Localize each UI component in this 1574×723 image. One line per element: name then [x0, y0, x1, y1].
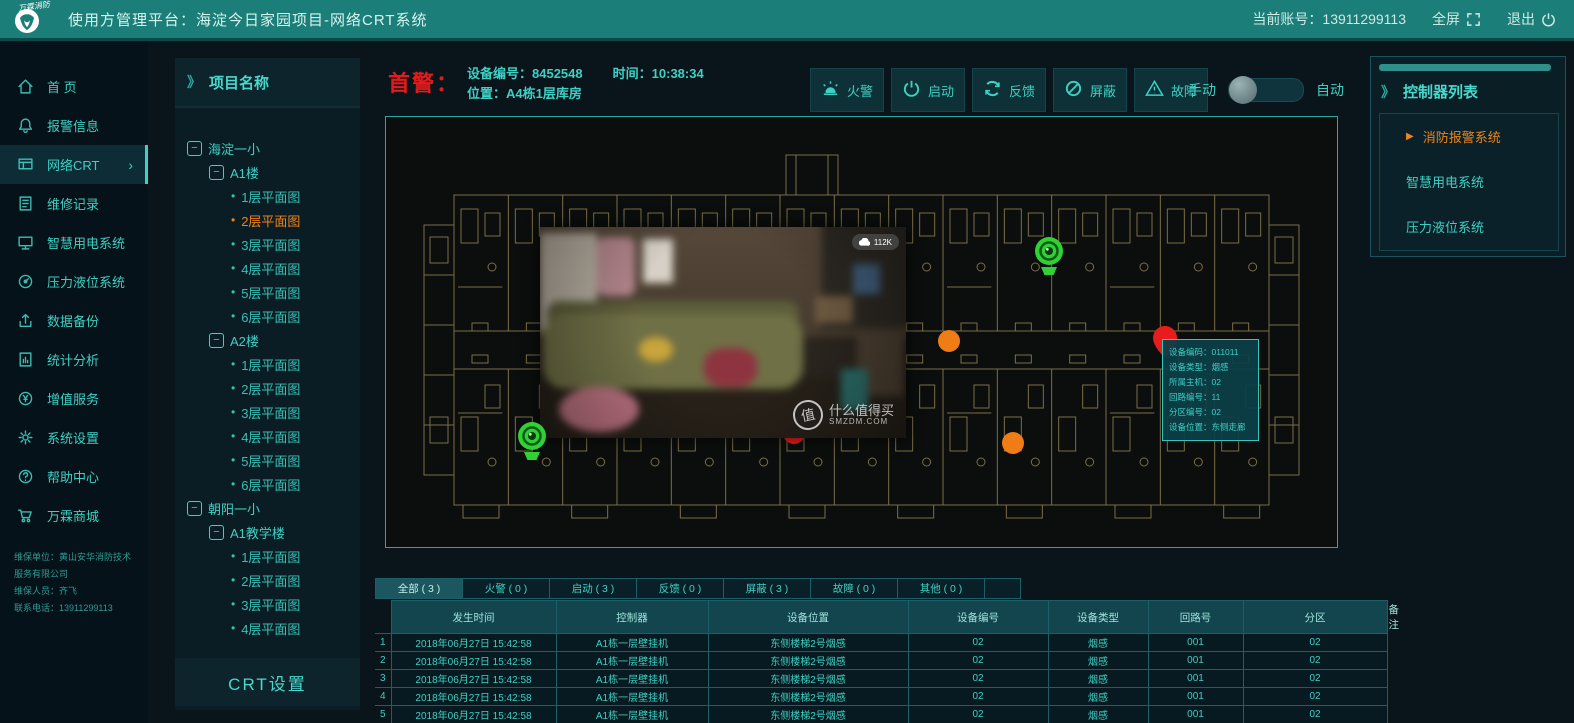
table-cell: 2 — [375, 652, 391, 670]
sidebar-item-value-added[interactable]: 增值服务 — [0, 379, 148, 418]
sidebar-item-label: 增值服务 — [47, 389, 99, 408]
bullet-icon: • — [231, 357, 235, 371]
location-value: A4栋1层库房 — [506, 86, 582, 101]
tree-item-label: 4层平面图 — [241, 427, 300, 446]
event-tab[interactable]: 屏蔽 ( 3 ) — [724, 579, 811, 598]
location-label: 位置： — [467, 86, 506, 101]
block-icon — [1064, 79, 1083, 101]
device-dot-orange[interactable] — [1002, 432, 1024, 454]
feedback-button[interactable]: 反馈 — [972, 68, 1046, 112]
app-title: 使用方管理平台：海淀今日家园项目-网络CRT系统 — [68, 9, 428, 30]
table-cell: A1栋一层壁挂机 — [556, 688, 708, 706]
floorplan-map[interactable]: 112K 值 什么值得买 SMZDM.COM 设备编码：011011设备类型：烟… — [385, 116, 1338, 548]
table-cell: A1栋一层壁挂机 — [556, 670, 708, 688]
controller-item[interactable]: 智慧用电系统 — [1380, 159, 1558, 204]
sidebar-footer-line: 维保人员：齐飞 — [14, 583, 136, 600]
sidebar-item-home[interactable]: 首 页 — [0, 67, 148, 106]
bullet-icon: • — [231, 621, 235, 635]
tree-item-label: 3层平面图 — [241, 403, 300, 422]
tree-item-label: 5层平面图 — [241, 451, 300, 470]
controller-item[interactable]: 压力液位系统 — [1380, 204, 1558, 249]
sidebar-footer-line: 维保单位：黄山安华消防技术服务有限公司 — [14, 549, 136, 583]
power-icon — [1541, 12, 1556, 27]
tree-item[interactable]: •2层平面图 — [175, 208, 360, 232]
time-label: 时间： — [613, 66, 652, 81]
fullscreen-icon — [1466, 12, 1481, 27]
camera-video-popup[interactable]: 112K 值 什么值得买 SMZDM.COM — [540, 227, 906, 438]
action-button-label: 启动 — [928, 81, 954, 100]
tree-item-label: 1层平面图 — [241, 355, 300, 374]
siren-icon — [821, 79, 840, 101]
tooltip-row: 分区编号：02 — [1169, 405, 1252, 420]
table-cell: 02 — [1243, 634, 1387, 652]
table-cell: 东侧楼梯2号烟感 — [708, 688, 908, 706]
camera-marker[interactable] — [1031, 235, 1067, 284]
video-watermark: 值 什么值得买 SMZDM.COM — [793, 400, 894, 430]
coin-icon — [17, 390, 34, 407]
tree-item-label: A2楼 — [230, 331, 259, 350]
tree-item[interactable]: −海淀一小 — [175, 136, 360, 160]
cloud-icon — [859, 238, 870, 246]
sidebar-item-alarm-info[interactable]: 报警信息 — [0, 106, 148, 145]
table-cell: 5 — [375, 706, 391, 723]
tree-item[interactable]: •3层平面图 — [175, 592, 360, 616]
upload-icon — [17, 312, 34, 329]
bullet-icon: • — [231, 213, 235, 227]
sidebar-item-label: 报警信息 — [47, 116, 99, 135]
table-cell: 烟感 — [1048, 706, 1148, 723]
project-panel-title: 项目名称 — [209, 72, 269, 93]
project-tree: −海淀一小−A1楼•1层平面图•2层平面图•3层平面图•4层平面图•5层平面图•… — [175, 108, 360, 640]
refresh-icon — [983, 79, 1002, 101]
table-cell: 烟感 — [1048, 634, 1148, 652]
manual-auto-toggle[interactable] — [1228, 78, 1304, 102]
tree-item-label: 3层平面图 — [241, 235, 300, 254]
tree-item[interactable]: −A1教学楼 — [175, 520, 360, 544]
crt-icon — [17, 156, 34, 173]
project-panel: 》 项目名称 −海淀一小−A1楼•1层平面图•2层平面图•3层平面图•4层平面图… — [175, 58, 360, 710]
sidebar-footer: 维保单位：黄山安华消防技术服务有限公司维保人员：齐飞联系电话：139112991… — [0, 549, 148, 617]
bullet-icon: • — [231, 477, 235, 491]
project-panel-header: 》 项目名称 — [175, 58, 360, 108]
tree-item-label: A1楼 — [230, 163, 259, 182]
sidebar-item-label: 压力液位系统 — [47, 272, 125, 291]
manual-label: 手动 — [1188, 80, 1216, 100]
column-header: 控制器 — [556, 601, 708, 634]
gear-icon — [17, 429, 34, 446]
table-cell: 2018年06月27日 15:42:58 — [391, 706, 556, 723]
table-cell: 东侧楼梯2号烟感 — [708, 706, 908, 723]
table-cell: 烟感 — [1048, 652, 1148, 670]
sidebar: 首 页报警信息网络CRT›维修记录智慧用电系统压力液位系统数据备份统计分析增值服… — [0, 41, 148, 723]
sidebar-item-label: 维修记录 — [47, 194, 99, 213]
first-alarm-info: 设备编号：8452548时间：10:38:34 位置：A4栋1层库房 — [467, 64, 704, 104]
app: 万霖消防 使用方管理平台：海淀今日家园项目-网络CRT系统 当前账号：13911… — [0, 0, 1574, 723]
power-icon — [902, 79, 921, 101]
column-header: 设备位置 — [708, 601, 908, 634]
tree-item[interactable]: •5层平面图 — [175, 448, 360, 472]
table-cell: 02 — [1243, 670, 1387, 688]
column-header: 分区 — [1243, 601, 1387, 634]
table-cell: 3 — [375, 670, 391, 688]
sidebar-item-maintenance-record[interactable]: 维修记录 — [0, 184, 148, 223]
chevron-right-icon: › — [128, 157, 133, 173]
top-header: 万霖消防 使用方管理平台：海淀今日家园项目-网络CRT系统 当前账号：13911… — [0, 0, 1574, 41]
bullet-icon: • — [231, 237, 235, 251]
table-cell: A1栋一层壁挂机 — [556, 706, 708, 723]
device-tooltip: 设备编码：011011设备类型：烟感所属主机：02回路编号：11分区编号：02设… — [1162, 339, 1259, 441]
tree-item-label: 1层平面图 — [241, 547, 300, 566]
tree-item[interactable]: •4层平面图 — [175, 424, 360, 448]
sidebar-item-label: 万霖商城 — [47, 506, 99, 525]
table-corner — [375, 601, 391, 634]
table-cell: 4 — [375, 688, 391, 706]
sidebar-item-pressure-level[interactable]: 压力液位系统 — [0, 262, 148, 301]
table-cell: 2018年06月27日 15:42:58 — [391, 670, 556, 688]
sidebar-item-network-crt[interactable]: 网络CRT› — [0, 145, 148, 184]
table-cell: A1栋一层壁挂机 — [556, 634, 708, 652]
toggle-knob[interactable] — [1229, 76, 1257, 104]
table-cell: 东侧楼梯2号烟感 — [708, 634, 908, 652]
tooltip-row: 设备位置：东侧走廊 — [1169, 420, 1252, 435]
tooltip-row: 设备编码：011011 — [1169, 345, 1252, 360]
table-cell: 烟感 — [1048, 688, 1148, 706]
mode-toggle-group: 手动 自动 — [1188, 78, 1344, 102]
tree-item-label: 6层平面图 — [241, 307, 300, 326]
collapse-icon[interactable]: − — [209, 165, 224, 180]
bullet-icon: • — [231, 309, 235, 323]
table-cell: 02 — [908, 652, 1048, 670]
sidebar-item-label: 网络CRT — [47, 155, 99, 174]
event-tab[interactable]: 全部 ( 3 ) — [376, 579, 463, 598]
crt-settings-button[interactable]: CRT设置 — [175, 658, 360, 706]
tree-item[interactable]: −A1楼 — [175, 160, 360, 184]
table-cell: 02 — [908, 706, 1048, 723]
bullet-icon: • — [231, 597, 235, 611]
bullet-icon: • — [231, 453, 235, 467]
sidebar-item-label: 数据备份 — [47, 311, 99, 330]
column-header: 发生时间 — [391, 601, 556, 634]
action-button-label: 火警 — [847, 81, 873, 100]
table-cell: 001 — [1148, 688, 1243, 706]
tree-item-label: 朝阳一小 — [208, 499, 260, 518]
sidebar-item-label: 统计分析 — [47, 350, 99, 369]
watermark-logo: 值 — [790, 397, 826, 433]
collapse-icon[interactable]: − — [209, 333, 224, 348]
table-cell: 02 — [1243, 652, 1387, 670]
tree-item[interactable]: •2层平面图 — [175, 568, 360, 592]
sidebar-item-system-settings[interactable]: 系统设置 — [0, 418, 148, 457]
collapse-icon[interactable]: − — [187, 501, 202, 516]
event-tab[interactable]: 启动 ( 3 ) — [550, 579, 637, 598]
device-dot-orange[interactable] — [938, 330, 960, 352]
sidebar-menu: 首 页报警信息网络CRT›维修记录智慧用电系统压力液位系统数据备份统计分析增值服… — [0, 67, 148, 535]
action-button-label: 屏蔽 — [1090, 81, 1116, 100]
bullet-icon: • — [231, 549, 235, 563]
table-row[interactable]: 52018年06月27日 15:42:58A1栋一层壁挂机东侧楼梯2号烟感02烟… — [375, 706, 1387, 723]
tree-item-label: 3层平面图 — [241, 595, 300, 614]
bell-icon — [17, 117, 34, 134]
tree-item-label: A1教学楼 — [230, 523, 285, 542]
auto-label: 自动 — [1316, 80, 1344, 100]
sidebar-item-label: 系统设置 — [47, 428, 99, 447]
logout-button[interactable]: 退出 — [1507, 9, 1556, 29]
controller-list: ▶消防报警系统智慧用电系统压力液位系统 — [1379, 113, 1559, 251]
event-tab[interactable]: 其他 ( 0 ) — [898, 579, 985, 598]
table-row[interactable]: 42018年06月27日 15:42:58A1栋一层壁挂机东侧楼梯2号烟感02烟… — [375, 688, 1387, 706]
table-cell: 02 — [1243, 706, 1387, 723]
tree-item[interactable]: •4层平面图 — [175, 256, 360, 280]
tree-item[interactable]: •5层平面图 — [175, 280, 360, 304]
action-buttons: 火警启动反馈屏蔽故障 — [810, 68, 1208, 112]
sidebar-item-label: 首 页 — [47, 77, 77, 96]
sidebar-item-data-backup[interactable]: 数据备份 — [0, 301, 148, 340]
device-dot — [938, 330, 960, 352]
tree-item[interactable]: •1层平面图 — [175, 352, 360, 376]
tree-item[interactable]: −朝阳一小 — [175, 496, 360, 520]
header-right: 当前账号：13911299113 全屏 退出 — [1252, 9, 1556, 29]
table-row[interactable]: 22018年06月27日 15:42:58A1栋一层壁挂机东侧楼梯2号烟感02烟… — [375, 652, 1387, 670]
sidebar-item-label: 智慧用电系统 — [47, 233, 125, 252]
event-log: 全部 ( 3 )火警 ( 0 )启动 ( 3 )反馈 ( 0 )屏蔽 ( 3 )… — [375, 578, 1357, 723]
first-alarm-label: 首警： — [388, 66, 460, 98]
device-no-label: 设备编号： — [467, 66, 532, 81]
table-cell: A1栋一层壁挂机 — [556, 652, 708, 670]
tree-item-label: 2层平面图 — [241, 211, 300, 230]
table-cell: 1 — [375, 634, 391, 652]
controller-item-label: 压力液位系统 — [1406, 217, 1484, 236]
table-cell: 02 — [1243, 688, 1387, 706]
fullscreen-button[interactable]: 全屏 — [1432, 9, 1481, 29]
tree-item-label: 4层平面图 — [241, 259, 300, 278]
tree-item[interactable]: −A2楼 — [175, 328, 360, 352]
double-chevron-icon: 》 — [1381, 82, 1395, 102]
event-table: 发生时间控制器设备位置设备编号设备类型回路号分区备注 12018年06月27日 … — [375, 600, 1388, 723]
tree-item-label: 2层平面图 — [241, 379, 300, 398]
tree-item[interactable]: •4层平面图 — [175, 616, 360, 640]
table-cell: 东侧楼梯2号烟感 — [708, 670, 908, 688]
tree-item[interactable]: •1层平面图 — [175, 184, 360, 208]
current-account: 当前账号：13911299113 — [1252, 9, 1406, 29]
controller-item-label: 消防报警系统 — [1423, 127, 1501, 146]
record-icon — [17, 195, 34, 212]
event-tabs: 全部 ( 3 )火警 ( 0 )启动 ( 3 )反馈 ( 0 )屏蔽 ( 3 )… — [375, 578, 1021, 599]
warn-icon — [1145, 79, 1164, 101]
table-cell: 001 — [1148, 706, 1243, 723]
panel-scrollbar[interactable] — [1379, 64, 1551, 71]
home-icon — [17, 78, 34, 95]
table-cell: 001 — [1148, 652, 1243, 670]
device-dot — [1002, 432, 1024, 454]
event-tab[interactable]: 反馈 ( 0 ) — [637, 579, 724, 598]
tree-item-label: 2层平面图 — [241, 571, 300, 590]
doc-icon — [17, 351, 34, 368]
table-row[interactable]: 32018年06月27日 15:42:58A1栋一层壁挂机东侧楼梯2号烟感02烟… — [375, 670, 1387, 688]
fire-alarm-button[interactable]: 火警 — [810, 68, 884, 112]
logo-text: 万霖消防 — [17, 0, 50, 14]
event-tab[interactable]: 火警 ( 0 ) — [463, 579, 550, 598]
cart-icon — [17, 507, 34, 524]
bullet-icon: • — [231, 429, 235, 443]
table-cell: 001 — [1148, 670, 1243, 688]
column-header: 设备编号 — [908, 601, 1048, 634]
bullet-icon: • — [231, 405, 235, 419]
action-button-label: 反馈 — [1009, 81, 1035, 100]
controller-item[interactable]: ▶消防报警系统 — [1380, 114, 1558, 159]
tree-item-label: 5层平面图 — [241, 283, 300, 302]
monitor-icon — [17, 234, 34, 251]
tree-item[interactable]: •2层平面图 — [175, 376, 360, 400]
tree-item[interactable]: •1层平面图 — [175, 544, 360, 568]
table-cell: 2018年06月27日 15:42:58 — [391, 652, 556, 670]
tree-item-label: 海淀一小 — [208, 139, 260, 158]
device-no-value: 8452548 — [532, 66, 583, 81]
logo: 万霖消防 — [10, 0, 56, 38]
play-icon: ▶ — [1406, 131, 1414, 142]
tree-item[interactable]: •3层平面图 — [175, 400, 360, 424]
table-row[interactable]: 12018年06月27日 15:42:58A1栋一层壁挂机东侧楼梯2号烟感02烟… — [375, 634, 1387, 652]
tooltip-row: 所属主机：02 — [1169, 375, 1252, 390]
tab-filler — [985, 579, 1020, 598]
column-header: 设备类型 — [1048, 601, 1148, 634]
sidebar-item-help-center[interactable]: 帮助中心 — [0, 457, 148, 496]
column-header: 回路号 — [1148, 601, 1243, 634]
tree-item-label: 6层平面图 — [241, 475, 300, 494]
tree-item[interactable]: •3层平面图 — [175, 232, 360, 256]
tooltip-row: 设备类型：烟感 — [1169, 360, 1252, 375]
sidebar-item-mall[interactable]: 万霖商城 — [0, 496, 148, 535]
help-icon — [17, 468, 34, 485]
controller-panel-title: 》 控制器列表 — [1381, 81, 1478, 102]
controller-item-label: 智慧用电系统 — [1406, 172, 1484, 191]
controller-panel: 》 控制器列表 ▶消防报警系统智慧用电系统压力液位系统 — [1370, 56, 1566, 257]
bullet-icon: • — [231, 573, 235, 587]
tree-item[interactable]: •6层平面图 — [175, 472, 360, 496]
start-button[interactable]: 启动 — [891, 68, 965, 112]
sidebar-item-smart-power[interactable]: 智慧用电系统 — [0, 223, 148, 262]
sidebar-footer-line: 联系电话：13911299113 — [14, 600, 136, 617]
sidebar-item-statistics[interactable]: 统计分析 — [0, 340, 148, 379]
video-views-badge: 112K — [852, 234, 899, 250]
tree-item-label: 4层平面图 — [241, 619, 300, 638]
collapse-icon[interactable]: − — [209, 525, 224, 540]
gauge-icon — [17, 273, 34, 290]
table-cell: 2018年06月27日 15:42:58 — [391, 688, 556, 706]
bullet-icon: • — [231, 285, 235, 299]
shield-button[interactable]: 屏蔽 — [1053, 68, 1127, 112]
table-cell: 02 — [908, 634, 1048, 652]
bullet-icon: • — [231, 261, 235, 275]
table-cell: 烟感 — [1048, 670, 1148, 688]
sidebar-item-label: 帮助中心 — [47, 467, 99, 486]
collapse-icon[interactable]: − — [187, 141, 202, 156]
bullet-icon: • — [231, 189, 235, 203]
table-cell: 02 — [908, 670, 1048, 688]
table-cell: 001 — [1148, 634, 1243, 652]
table-cell: 02 — [908, 688, 1048, 706]
table-cell: 2018年06月27日 15:42:58 — [391, 634, 556, 652]
double-chevron-icon: 》 — [187, 72, 201, 92]
camera-marker[interactable] — [514, 420, 550, 469]
event-tab[interactable]: 故障 ( 0 ) — [811, 579, 898, 598]
table-cell: 东侧楼梯2号烟感 — [708, 652, 908, 670]
time-value: 10:38:34 — [652, 66, 704, 81]
tooltip-row: 回路编号：11 — [1169, 390, 1252, 405]
tree-item-label: 1层平面图 — [241, 187, 300, 206]
bullet-icon: • — [231, 381, 235, 395]
tree-item[interactable]: •6层平面图 — [175, 304, 360, 328]
